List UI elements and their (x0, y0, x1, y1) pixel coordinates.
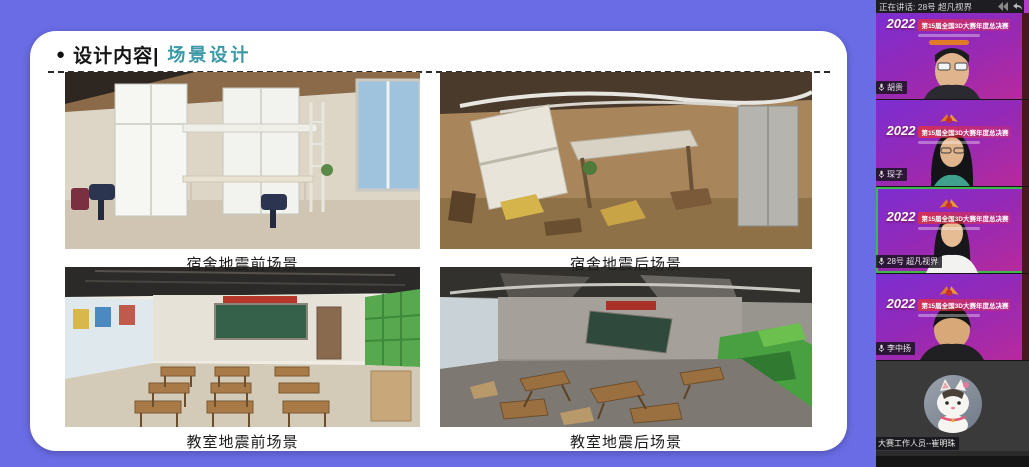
mic-icon (878, 83, 885, 92)
caption-dorm-pre: 宿舍地震前场景 (65, 253, 420, 274)
participant-2-name-tag: 琛子 (876, 168, 907, 181)
contest-logo-icon (937, 197, 961, 210)
clap-reaction-icon[interactable] (998, 2, 1009, 11)
next-thumbnail-partial (876, 451, 1029, 456)
thumbnail-edge-strip (1022, 187, 1029, 273)
slide-card: ● 设计内容| 场景设计 (30, 31, 847, 451)
slide-title-main: 设计内容| (73, 41, 159, 68)
contest-banner: 2022 第15届全国3D大赛年度总决赛 (876, 282, 1022, 317)
video-thumbnail-participant-3[interactable]: 2022 第15届全国3D大赛年度总决赛 28号 超凡视界 (876, 187, 1029, 273)
participant-1-name-tag: 胡贵 (876, 81, 907, 94)
contest-logo-icon (938, 112, 960, 124)
classroom-pre-earthquake-image (65, 267, 420, 427)
slide-title-sub: 场景设计 (167, 41, 251, 67)
participant-4-name-tag: 李中扬 (876, 342, 915, 355)
thumbnail-edge-strip (1022, 274, 1029, 360)
dorm-pre-earthquake-image (65, 72, 420, 249)
thumbnail-edge-strip (1022, 100, 1029, 186)
banner-subtitle-bar (918, 34, 980, 37)
speaking-status-bar: 正在讲话: 28号 超凡视界 (876, 0, 1029, 13)
avatar (924, 375, 982, 433)
caption-dorm-post: 宿舍地震后场景 (440, 253, 812, 274)
video-thumbnail-participant-1[interactable]: 2022 第15届全国3D大赛年度总决赛 胡贵 (876, 13, 1029, 99)
meeting-window: ● 设计内容| 场景设计 (0, 0, 1029, 467)
reply-arrow-icon[interactable] (1012, 2, 1023, 11)
slide-title: ● 设计内容| 场景设计 (56, 39, 251, 69)
banner-year: 2022 (887, 16, 916, 31)
video-thumbnail-participant-5[interactable]: 大赛工作人员--崔明珠 (876, 361, 1029, 455)
dorm-post-earthquake-image (440, 72, 812, 249)
banner-subtitle-bar (918, 227, 980, 230)
screen-share-area: ● 设计内容| 场景设计 (0, 0, 876, 467)
caption-classroom-post: 教室地震后场景 (440, 431, 812, 452)
participant-3-name-tag: 28号 超凡视界 (876, 255, 942, 268)
mic-icon (878, 257, 885, 266)
banner-subtitle-bar (918, 314, 980, 317)
contest-banner: 2022 第15届全国3D大赛年度总决赛 (876, 195, 1022, 230)
mic-icon (878, 344, 885, 353)
cat-avatar-icon (924, 375, 982, 433)
classroom-post-earthquake-image (440, 267, 812, 427)
bullet-icon: ● (56, 46, 65, 63)
contest-banner: 2022 第15届全国3D大赛年度总决赛 (876, 16, 1022, 45)
thumbnail-edge-strip (1022, 13, 1029, 99)
caption-classroom-pre: 教室地震前场景 (65, 431, 420, 452)
contest-logo-icon (937, 284, 961, 297)
participant-5-name-tag: 大赛工作人员--崔明珠 (876, 437, 959, 450)
participants-sidebar: 正在讲话: 28号 超凡视界 (876, 0, 1029, 467)
banner-title: 第15届全国3D大赛年度总决赛 (918, 19, 1011, 31)
banner-accent-pill (929, 40, 969, 45)
speaking-status-label: 正在讲话: 28号 超凡视界 (876, 1, 998, 13)
mic-icon (878, 170, 885, 179)
contest-banner: 2022 第15届全国3D大赛年度总决赛 (876, 110, 1022, 144)
banner-subtitle-bar (918, 141, 980, 144)
video-thumbnails: 2022 第15届全国3D大赛年度总决赛 胡贵 (876, 13, 1029, 456)
statusbar-edge-strip (1024, 0, 1029, 13)
video-thumbnail-participant-4[interactable]: 2022 第15届全国3D大赛年度总决赛 李中扬 (876, 274, 1029, 360)
video-thumbnail-participant-2[interactable]: 2022 第15届全国3D大赛年度总决赛 琛子 (876, 100, 1029, 186)
